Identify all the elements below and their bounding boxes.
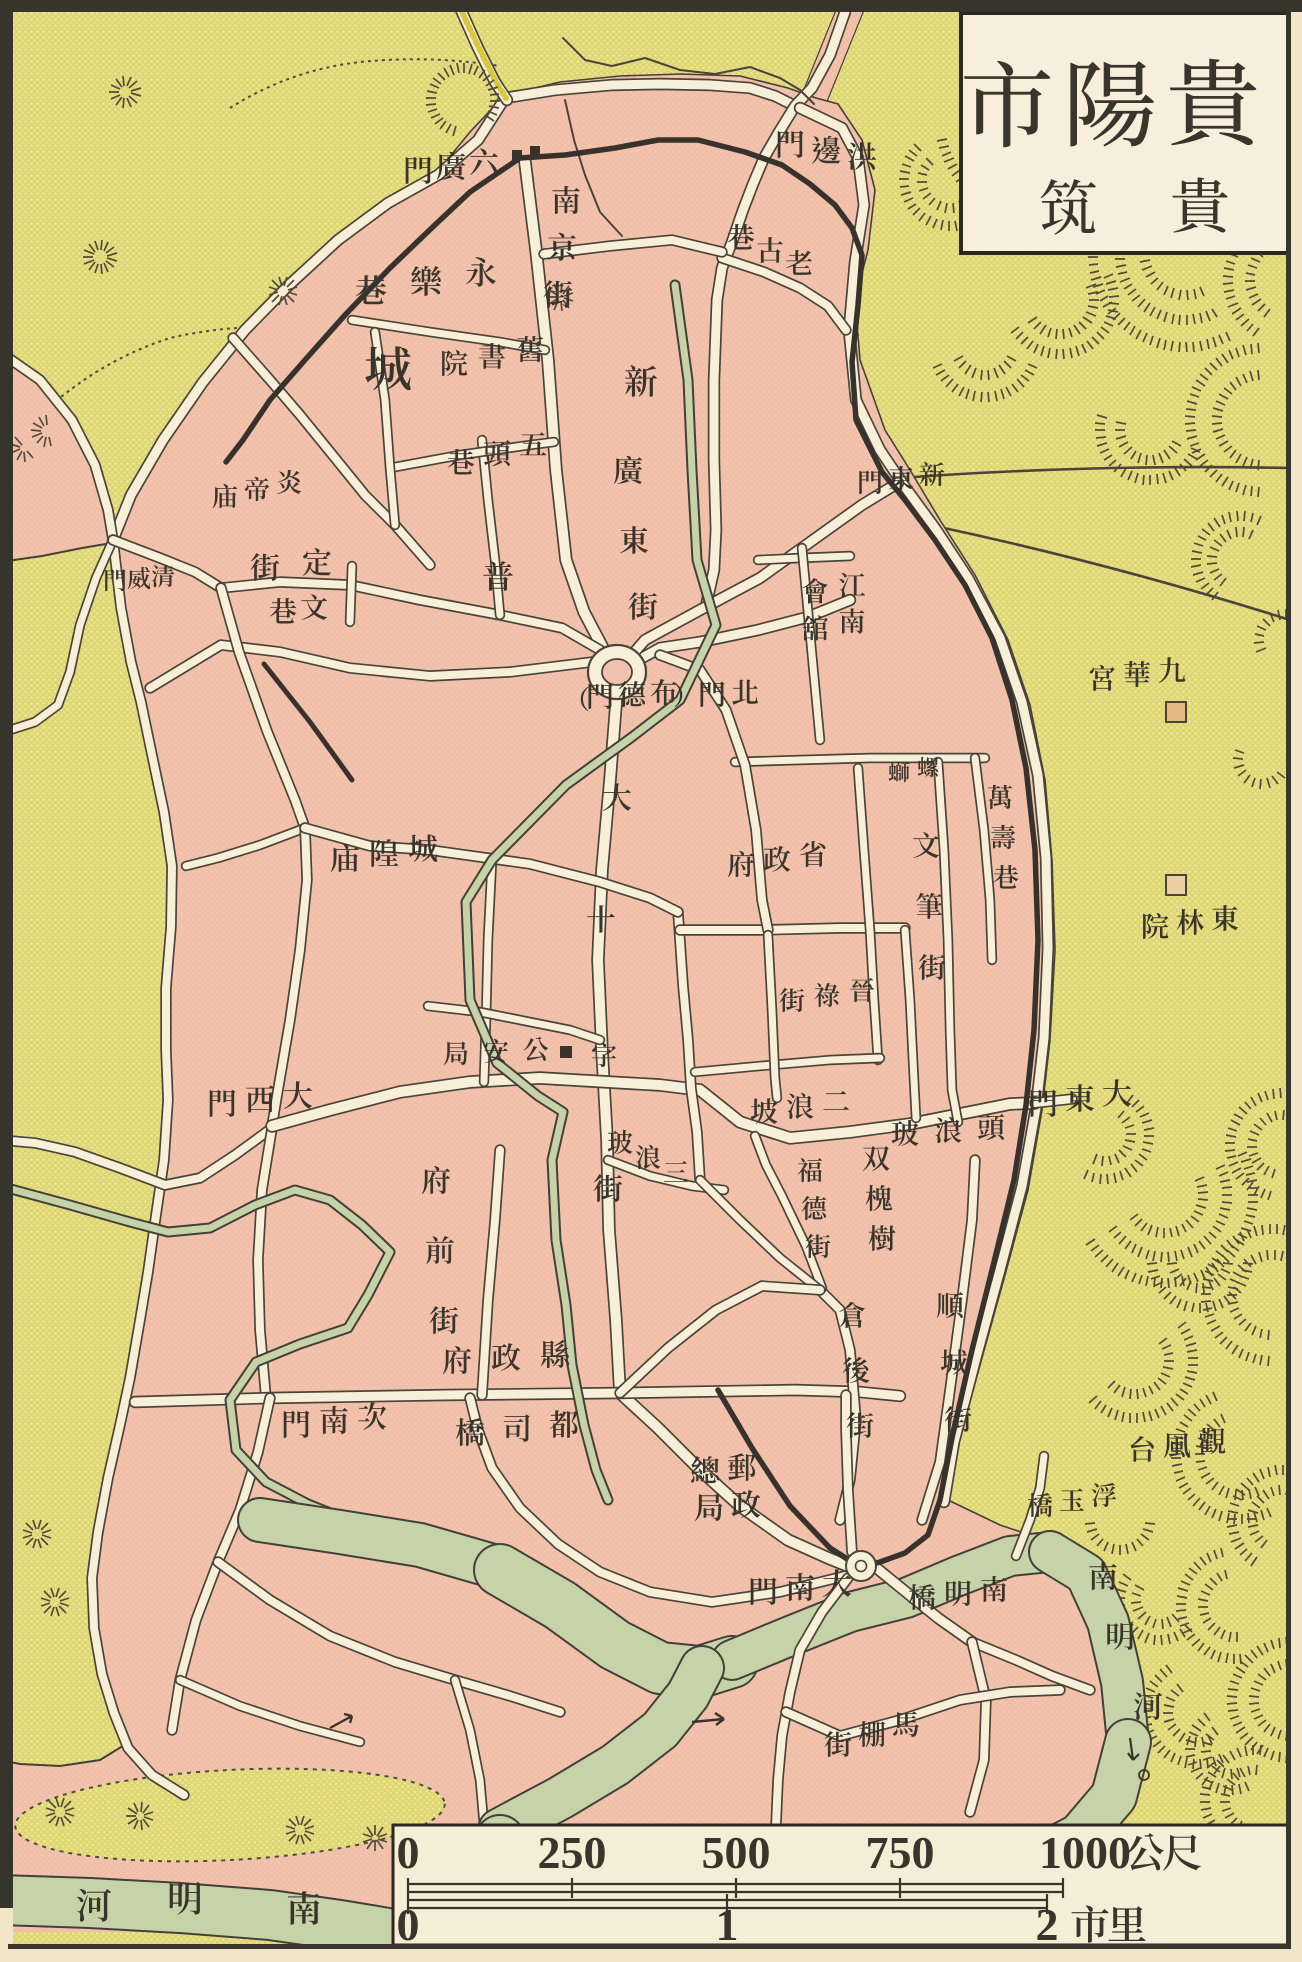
svg-text:500: 500 (702, 1827, 771, 1878)
svg-text:1000: 1000 (1039, 1827, 1131, 1878)
svg-text:750: 750 (866, 1827, 935, 1878)
svg-text:0: 0 (397, 1827, 420, 1878)
svg-text:250: 250 (538, 1827, 607, 1878)
